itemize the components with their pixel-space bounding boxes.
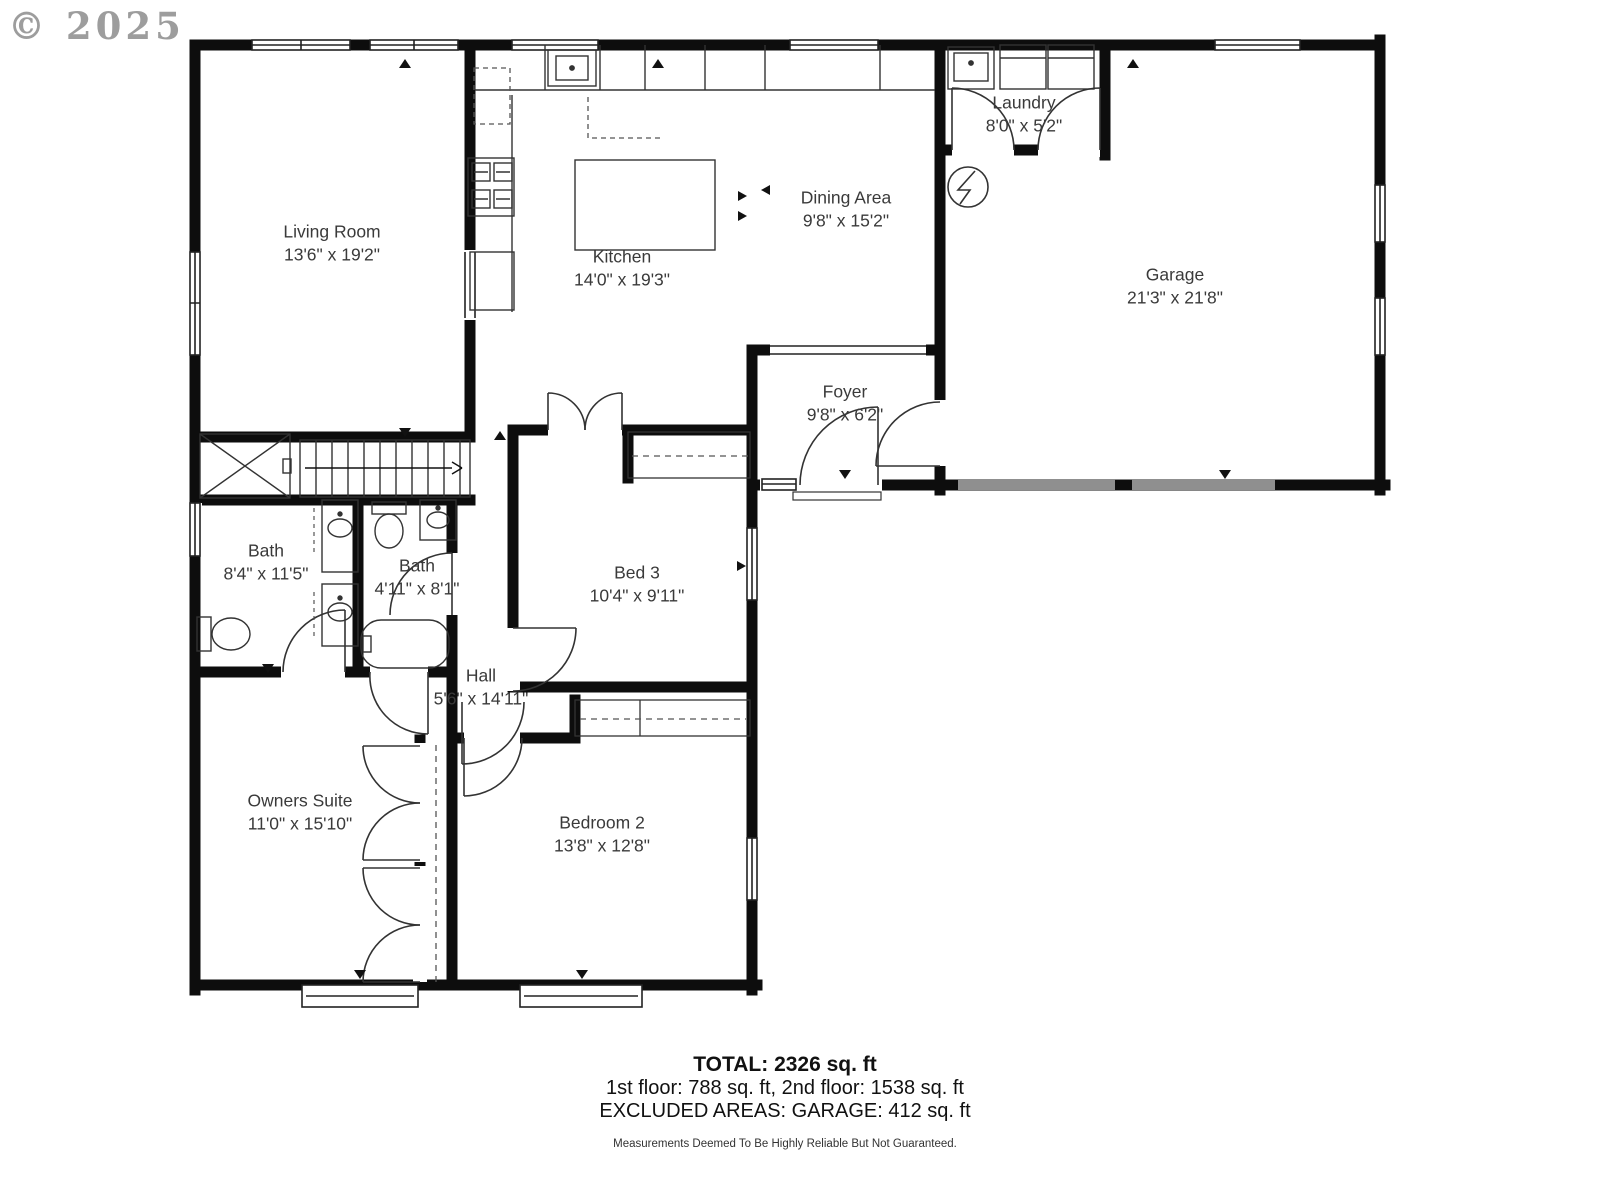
room-dimensions: 10'4" x 9'11" [590,584,685,607]
doors [283,88,1100,982]
room-name: Garage [1127,263,1223,286]
room-dimensions: 14'0" x 19'3" [574,268,670,291]
room-dimensions: 4'11" x 8'1" [375,577,460,600]
room-label-hall: Hall 5'6" x 14'11" [434,664,529,710]
room-dimensions: 21'3" x 21'8" [1127,286,1223,309]
kitchen-island [575,160,715,250]
staircase [300,440,470,497]
floor-areas-text: 1st floor: 788 sq. ft, 2nd floor: 1538 s… [606,1077,964,1100]
floor-plan-page: © 2025 [0,0,1600,1200]
room-dimensions: 9'8" x 6'2" [807,403,884,426]
room-name: Foyer [807,380,884,403]
room-name: Hall [434,664,529,687]
room-name: Living Room [283,220,380,243]
laundry-fixtures [948,45,1094,89]
room-dimensions: 5'6" x 14'11" [434,687,529,710]
room-name: Kitchen [574,245,670,268]
floor-plan-drawing [0,0,1600,1200]
room-name: Owners Suite [247,789,352,812]
room-dimensions: 13'6" x 19'2" [283,243,380,266]
room-label-living-room: Living Room 13'6" x 19'2" [283,220,380,266]
disclaimer-text: Measurements Deemed To Be Highly Reliabl… [613,1138,957,1150]
room-name: Bath [375,554,460,577]
total-area-text: TOTAL: 2326 sq. ft [693,1053,877,1077]
kitchen-counters [468,45,935,312]
water-heater [948,167,988,207]
room-dimensions: 8'0" x 5'2" [986,114,1063,137]
room-dimensions: 13'8" x 12'8" [554,834,650,857]
room-label-garage: Garage 21'3" x 21'8" [1127,263,1223,309]
room-dimensions: 11'0" x 15'10" [247,812,352,835]
wall-openings [188,38,1387,982]
room-name: Laundry [986,91,1063,114]
room-label-dining-area: Dining Area 9'8" x 15'2" [801,186,891,232]
room-label-bed-3: Bed 3 10'4" x 9'11" [590,561,685,607]
room-label-bath-main: Bath 8'4" x 11'5" [224,539,309,585]
room-label-bedroom-2: Bedroom 2 13'8" x 12'8" [554,811,650,857]
room-label-laundry: Laundry 8'0" x 5'2" [986,91,1063,137]
walls [195,40,1385,990]
room-dimensions: 9'8" x 15'2" [801,209,891,232]
room-dimensions: 8'4" x 11'5" [224,562,309,585]
kitchen-dashed-appliances [474,68,662,138]
windows [190,40,1385,1007]
room-name: Bedroom 2 [554,811,650,834]
room-label-owners-suite: Owners Suite 11'0" x 15'10" [247,789,352,835]
room-label-bath-hall: Bath 4'11" x 8'1" [375,554,460,600]
room-label-kitchen: Kitchen 14'0" x 19'3" [574,245,670,291]
excluded-areas-text: EXCLUDED AREAS: GARAGE: 412 sq. ft [599,1100,970,1123]
entry-stoop [793,492,881,500]
shower-stall [200,434,291,498]
room-label-foyer: Foyer 9'8" x 6'2" [807,380,884,426]
room-name: Bath [224,539,309,562]
closet-rods [436,456,748,982]
room-name: Dining Area [801,186,891,209]
room-name: Bed 3 [590,561,685,584]
